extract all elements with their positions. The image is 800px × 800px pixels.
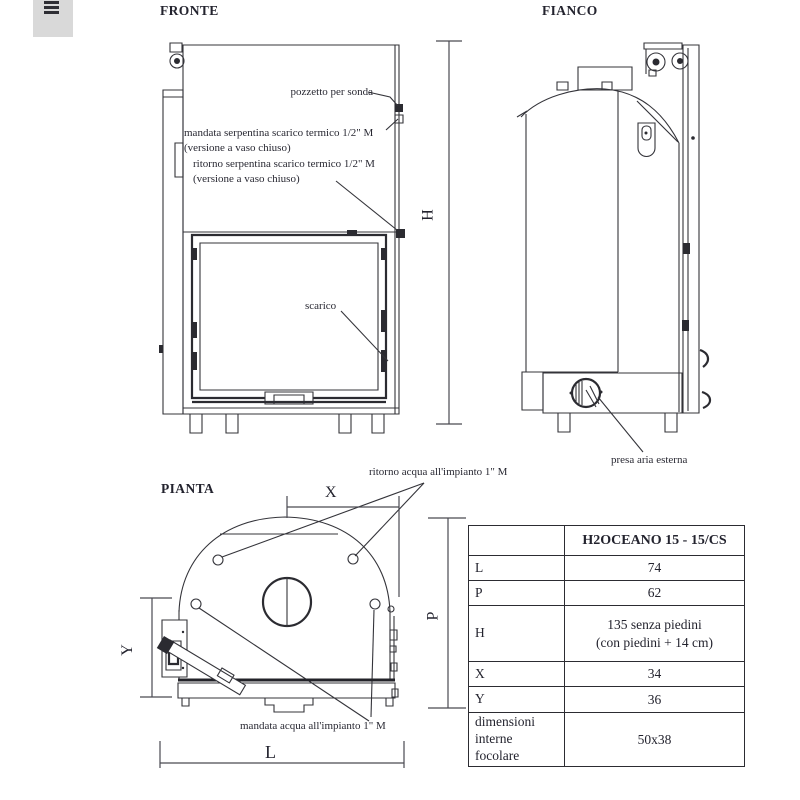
row-value: 135 senza piedini (con piedini + 14 cm) — [565, 606, 745, 662]
row-label: Y — [469, 687, 565, 713]
table-row: P 62 — [469, 581, 745, 606]
front-view-title: FRONTE — [160, 3, 219, 19]
dim-label-l: L — [265, 742, 276, 763]
page-edge-tab — [33, 0, 73, 37]
annotation-mandata-serpentina: mandata serpentina scarico termico 1/2" … — [184, 126, 373, 156]
annotation-ritorno-acqua: ritorno acqua all'impianto 1" M — [369, 465, 507, 480]
text-lines-icon — [44, 6, 59, 9]
row-label: X — [469, 662, 565, 687]
row-value: 34 — [565, 662, 745, 687]
row-value-line: (con piedini + 14 cm) — [569, 634, 740, 652]
text-lines-icon — [44, 1, 59, 4]
row-value: 74 — [565, 556, 745, 581]
table-row: Y 36 — [469, 687, 745, 713]
row-value: 36 — [565, 687, 745, 713]
dim-label-h: H — [417, 209, 435, 221]
text-lines-icon — [44, 11, 59, 14]
row-value-line: 135 senza piedini — [569, 616, 740, 634]
row-label: P — [469, 581, 565, 606]
side-view-drawing — [500, 28, 740, 473]
spec-table: H2OCEANO 15 - 15/CS L 74 P 62 H 135 senz… — [468, 525, 745, 767]
dim-label-y: Y — [119, 644, 137, 656]
side-view-title: FIANCO — [542, 3, 598, 19]
dim-label-x: X — [325, 484, 337, 502]
row-label: dimensioni interne focolare — [469, 713, 565, 767]
annotation-line: ritorno serpentina scarico termico 1/2" … — [193, 157, 375, 172]
spec-table-header-row: H2OCEANO 15 - 15/CS — [469, 526, 745, 556]
dim-label-p: P — [424, 612, 442, 621]
row-label: L — [469, 556, 565, 581]
annotation-pozzetto: pozzetto per sonda — [277, 85, 373, 100]
annotation-presa-aria: presa aria esterna — [611, 453, 687, 468]
row-value: 62 — [565, 581, 745, 606]
table-row: dimensioni interne focolare 50x38 — [469, 713, 745, 767]
row-value: 50x38 — [565, 713, 745, 767]
scanned-manual-page: { "corner_tab": { "icon": "text-lines" }… — [0, 0, 800, 800]
annotation-line: (versione a vaso chiuso) — [184, 141, 373, 156]
annotation-scarico: scarico — [305, 299, 336, 314]
annotation-line: mandata serpentina scarico termico 1/2" … — [184, 126, 373, 141]
annotation-mandata-acqua: mandata acqua all'impianto 1" M — [240, 719, 386, 734]
table-row: H 135 senza piedini (con piedini + 14 cm… — [469, 606, 745, 662]
table-row: L 74 — [469, 556, 745, 581]
annotation-ritorno-serpentina: ritorno serpentina scarico termico 1/2" … — [193, 157, 375, 187]
model-name: H2OCEANO 15 - 15/CS — [565, 526, 745, 556]
table-row: X 34 — [469, 662, 745, 687]
row-label: H — [469, 606, 565, 662]
annotation-line: (versione a vaso chiuso) — [193, 172, 375, 187]
header-empty-cell — [469, 526, 565, 556]
